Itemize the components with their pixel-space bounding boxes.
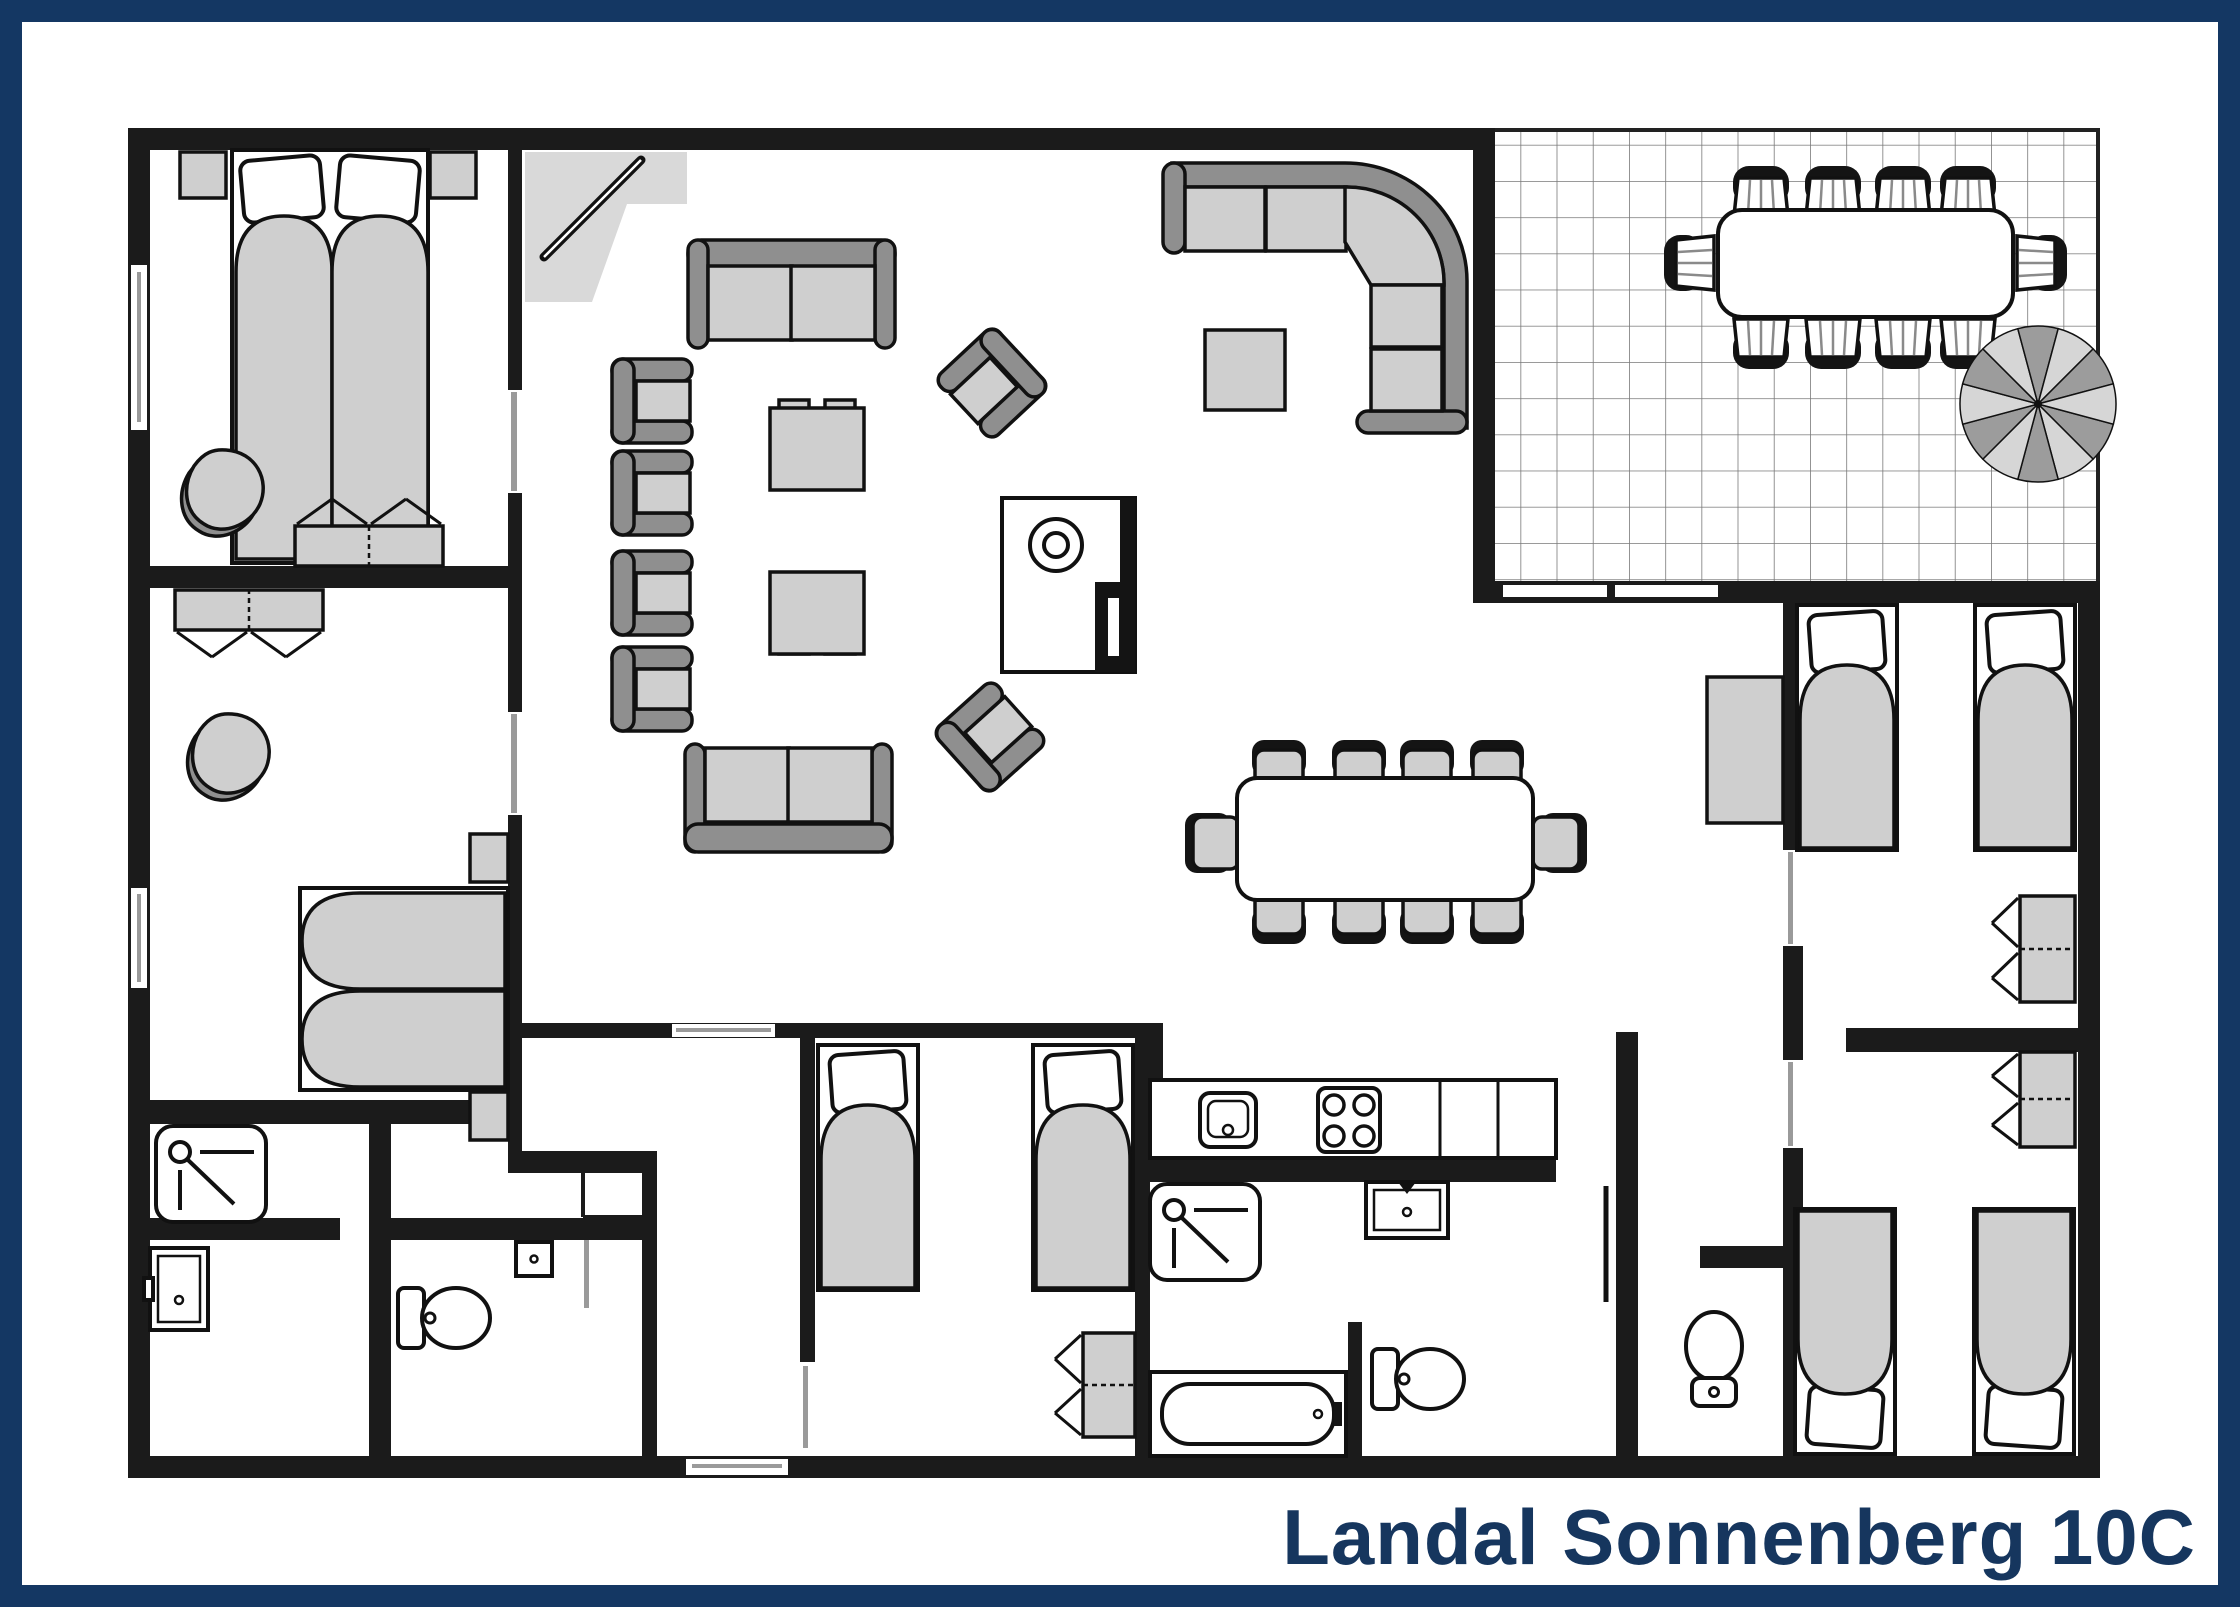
side-table — [1205, 330, 1285, 410]
nightstand — [470, 1092, 508, 1140]
terrace-table — [1718, 210, 2013, 317]
hall-cabinet — [1707, 677, 1783, 823]
nightstand — [180, 152, 226, 198]
dining-chair-end — [1533, 813, 1587, 873]
armchair-angled — [934, 325, 1050, 441]
dining-table — [1237, 778, 1533, 900]
terrace-edge-top — [1495, 128, 2100, 132]
washbasin — [1366, 1182, 1448, 1238]
floor-plan-svg — [0, 0, 2240, 1607]
bathroom — [1150, 1182, 1606, 1456]
room-wc-left — [398, 1242, 552, 1348]
armchair — [612, 551, 692, 635]
nightstand — [470, 834, 508, 882]
room-bedroom-3 — [818, 1045, 1135, 1437]
shower — [1150, 1184, 1260, 1280]
room-bedroom-1 — [180, 150, 476, 566]
nightstand — [430, 152, 476, 198]
hand-basin — [516, 1242, 552, 1276]
single-bed — [1974, 1209, 2074, 1454]
dining-chair-end — [1185, 813, 1239, 873]
room-bedroom-2 — [175, 590, 508, 1140]
double-bed — [300, 888, 508, 1090]
dining-area — [1185, 740, 1587, 944]
room-bedroom-5 — [1795, 1052, 2075, 1454]
fireplace-stove — [1002, 498, 1135, 672]
armchair — [612, 647, 692, 731]
entrance — [525, 152, 687, 302]
kitchen — [1150, 1080, 1556, 1158]
washbasin — [144, 1248, 208, 1330]
room-living — [525, 152, 1467, 852]
armchair-angled — [932, 679, 1048, 795]
room-wc-right — [1686, 1312, 1742, 1406]
toilet — [398, 1288, 490, 1348]
wardrobe — [175, 590, 323, 657]
armchair — [612, 359, 692, 443]
single-bed — [1975, 605, 2075, 850]
kitchen-sink — [1200, 1093, 1256, 1147]
terrace-door-slit — [1503, 585, 1607, 597]
plan-title: Landal Sonnenberg 10C — [1282, 1492, 2196, 1583]
single-bed — [818, 1045, 918, 1290]
toilet — [1372, 1349, 1464, 1409]
toilet — [1686, 1312, 1742, 1380]
single-bed — [1797, 605, 1897, 850]
coffee-table — [770, 400, 864, 490]
lounge-chair — [188, 714, 270, 800]
hob — [1318, 1088, 1380, 1152]
coffee-table — [770, 572, 864, 654]
terrace-door-slit — [1615, 585, 1718, 597]
single-bed — [1033, 1045, 1133, 1290]
bathtub — [1150, 1372, 1346, 1456]
floor-plan-image: Landal Sonnenberg 10C — [0, 0, 2240, 1607]
wardrobe — [1055, 1333, 1135, 1437]
armchair — [612, 451, 692, 535]
room-bedroom-4 — [1797, 605, 2075, 1002]
shower — [156, 1126, 266, 1222]
wardrobe — [1992, 1052, 2075, 1147]
sofa-bottom — [685, 744, 892, 852]
wardrobe — [1992, 896, 2075, 1002]
single-bed — [1795, 1209, 1895, 1454]
sofa-top — [688, 240, 895, 348]
